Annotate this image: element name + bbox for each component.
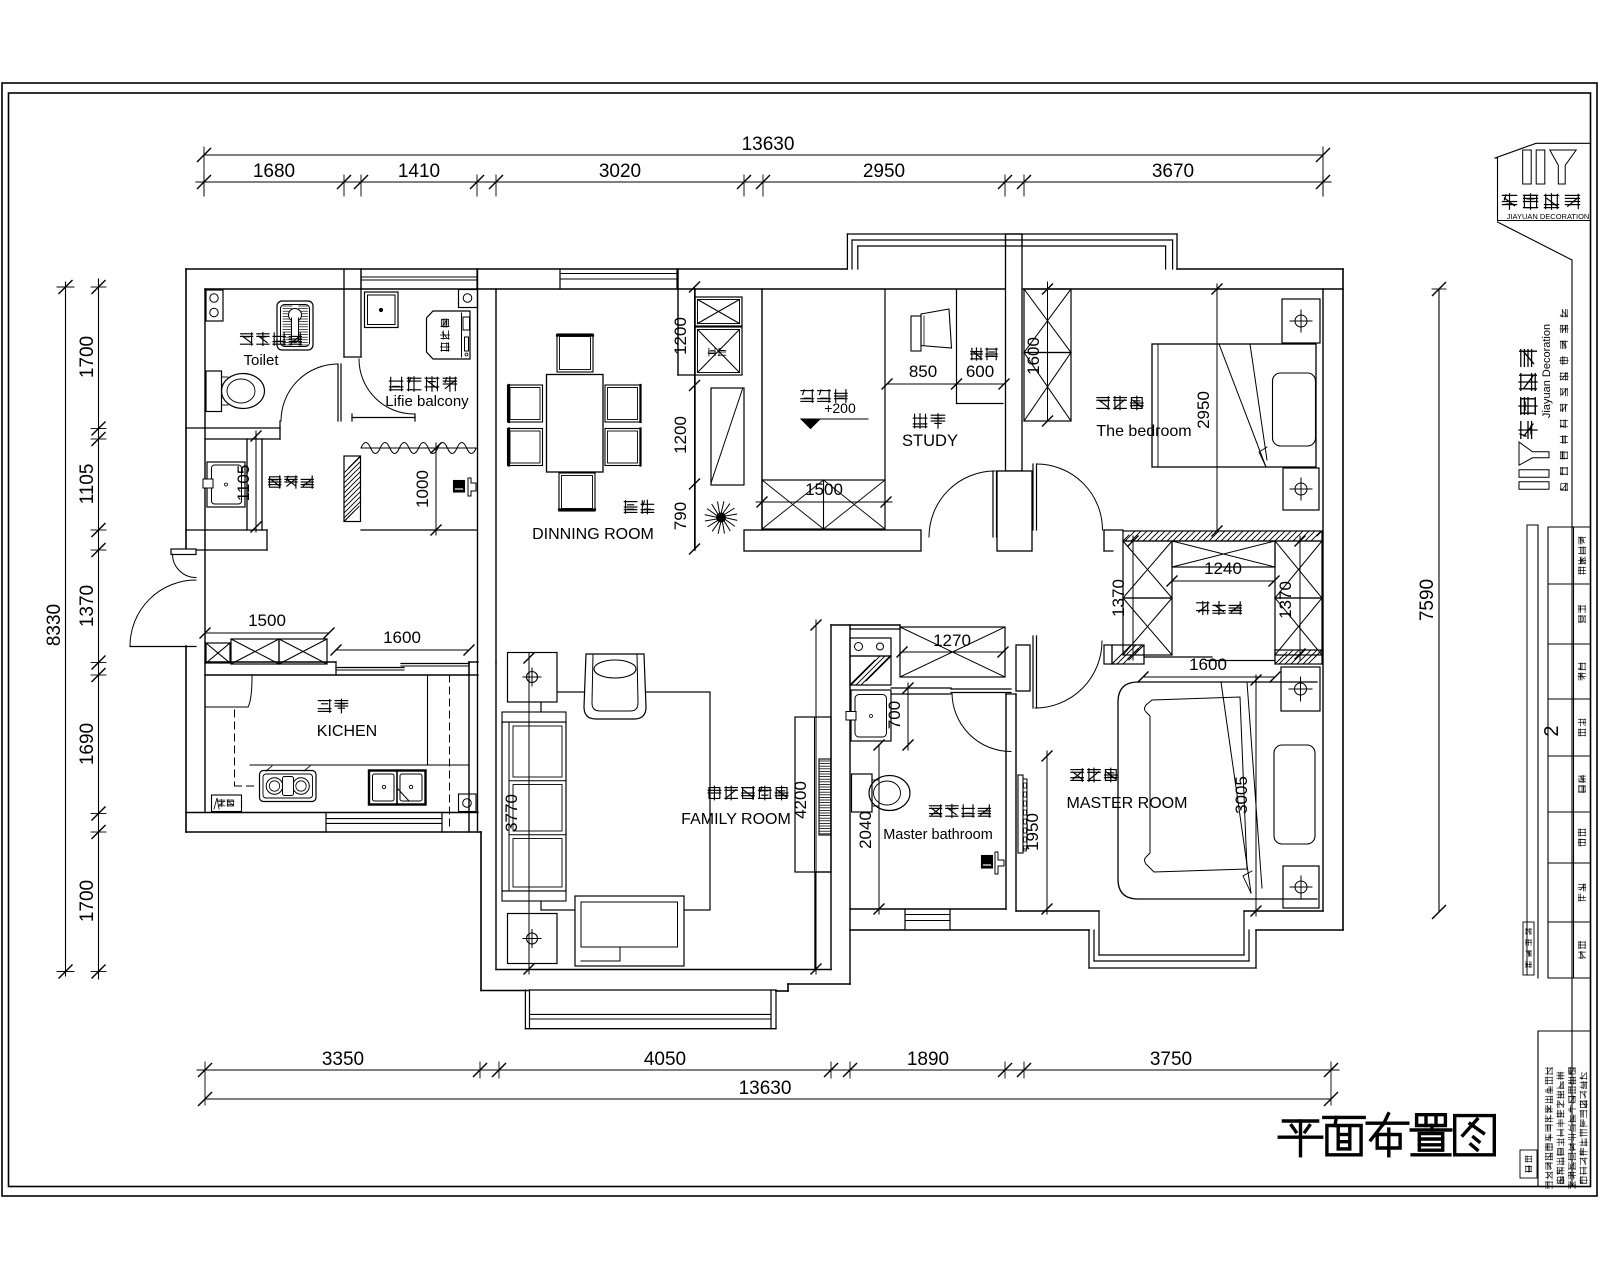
svg-text:1950: 1950: [1023, 813, 1042, 851]
svg-text:1200: 1200: [671, 416, 690, 454]
svg-text:1270: 1270: [933, 631, 971, 650]
svg-text:JIAYUAN DECORATION: JIAYUAN DECORATION: [1507, 212, 1590, 221]
svg-text:1890: 1890: [907, 1049, 949, 1070]
svg-text:3005: 3005: [1232, 776, 1251, 814]
svg-text:Toilet: Toilet: [243, 352, 279, 369]
svg-text:3020: 3020: [599, 161, 641, 182]
svg-text:1370: 1370: [77, 585, 98, 627]
svg-text:700: 700: [885, 701, 904, 729]
svg-text:KICHEN: KICHEN: [317, 723, 377, 740]
svg-text:13630: 13630: [742, 134, 795, 155]
svg-text:The bedroom: The bedroom: [1096, 423, 1191, 440]
svg-text:STUDY: STUDY: [902, 432, 958, 450]
svg-text:790: 790: [671, 502, 690, 530]
svg-text:3750: 3750: [1150, 1049, 1192, 1070]
svg-text:Lifie balcony: Lifie balcony: [385, 393, 469, 410]
svg-text:1370: 1370: [1276, 581, 1295, 619]
svg-text:2: 2: [1541, 725, 1563, 736]
svg-text:1500: 1500: [248, 611, 286, 630]
svg-text:4200: 4200: [791, 781, 810, 819]
svg-text:2950: 2950: [1194, 391, 1213, 429]
svg-text:1200: 1200: [671, 317, 690, 355]
svg-text:Master bathroom: Master bathroom: [883, 827, 993, 843]
svg-text:1690: 1690: [77, 723, 98, 765]
svg-text:3350: 3350: [322, 1049, 364, 1070]
svg-text:1000: 1000: [413, 470, 432, 508]
svg-text:1600: 1600: [1189, 655, 1227, 674]
svg-text:1240: 1240: [1204, 559, 1242, 578]
svg-text:1500: 1500: [805, 480, 843, 499]
svg-text:600: 600: [966, 362, 994, 381]
svg-text:FAMILY ROOM: FAMILY ROOM: [681, 811, 791, 828]
svg-text:1600: 1600: [1024, 337, 1043, 375]
svg-text:MASTER ROOM: MASTER ROOM: [1067, 795, 1188, 812]
svg-text:2040: 2040: [856, 811, 875, 849]
svg-text:3770: 3770: [502, 794, 521, 832]
svg-text:1680: 1680: [253, 161, 295, 182]
svg-text:850: 850: [909, 362, 937, 381]
svg-text:DINNING ROOM: DINNING ROOM: [532, 526, 654, 543]
svg-text:1600: 1600: [383, 628, 421, 647]
svg-text:3670: 3670: [1152, 161, 1194, 182]
svg-text:1410: 1410: [398, 161, 440, 182]
svg-text:1105: 1105: [234, 465, 253, 502]
svg-text:Jiayuan Decoration: Jiayuan Decoration: [1541, 324, 1553, 418]
svg-text:7590: 7590: [1417, 579, 1438, 621]
svg-text:13630: 13630: [739, 1078, 792, 1099]
svg-text:1105: 1105: [77, 464, 98, 505]
svg-text:2950: 2950: [863, 161, 905, 182]
svg-text:4050: 4050: [644, 1049, 686, 1070]
svg-text:1700: 1700: [77, 880, 98, 922]
svg-text:8330: 8330: [44, 604, 65, 646]
svg-text:1370: 1370: [1109, 579, 1128, 617]
svg-text:1700: 1700: [77, 336, 98, 378]
